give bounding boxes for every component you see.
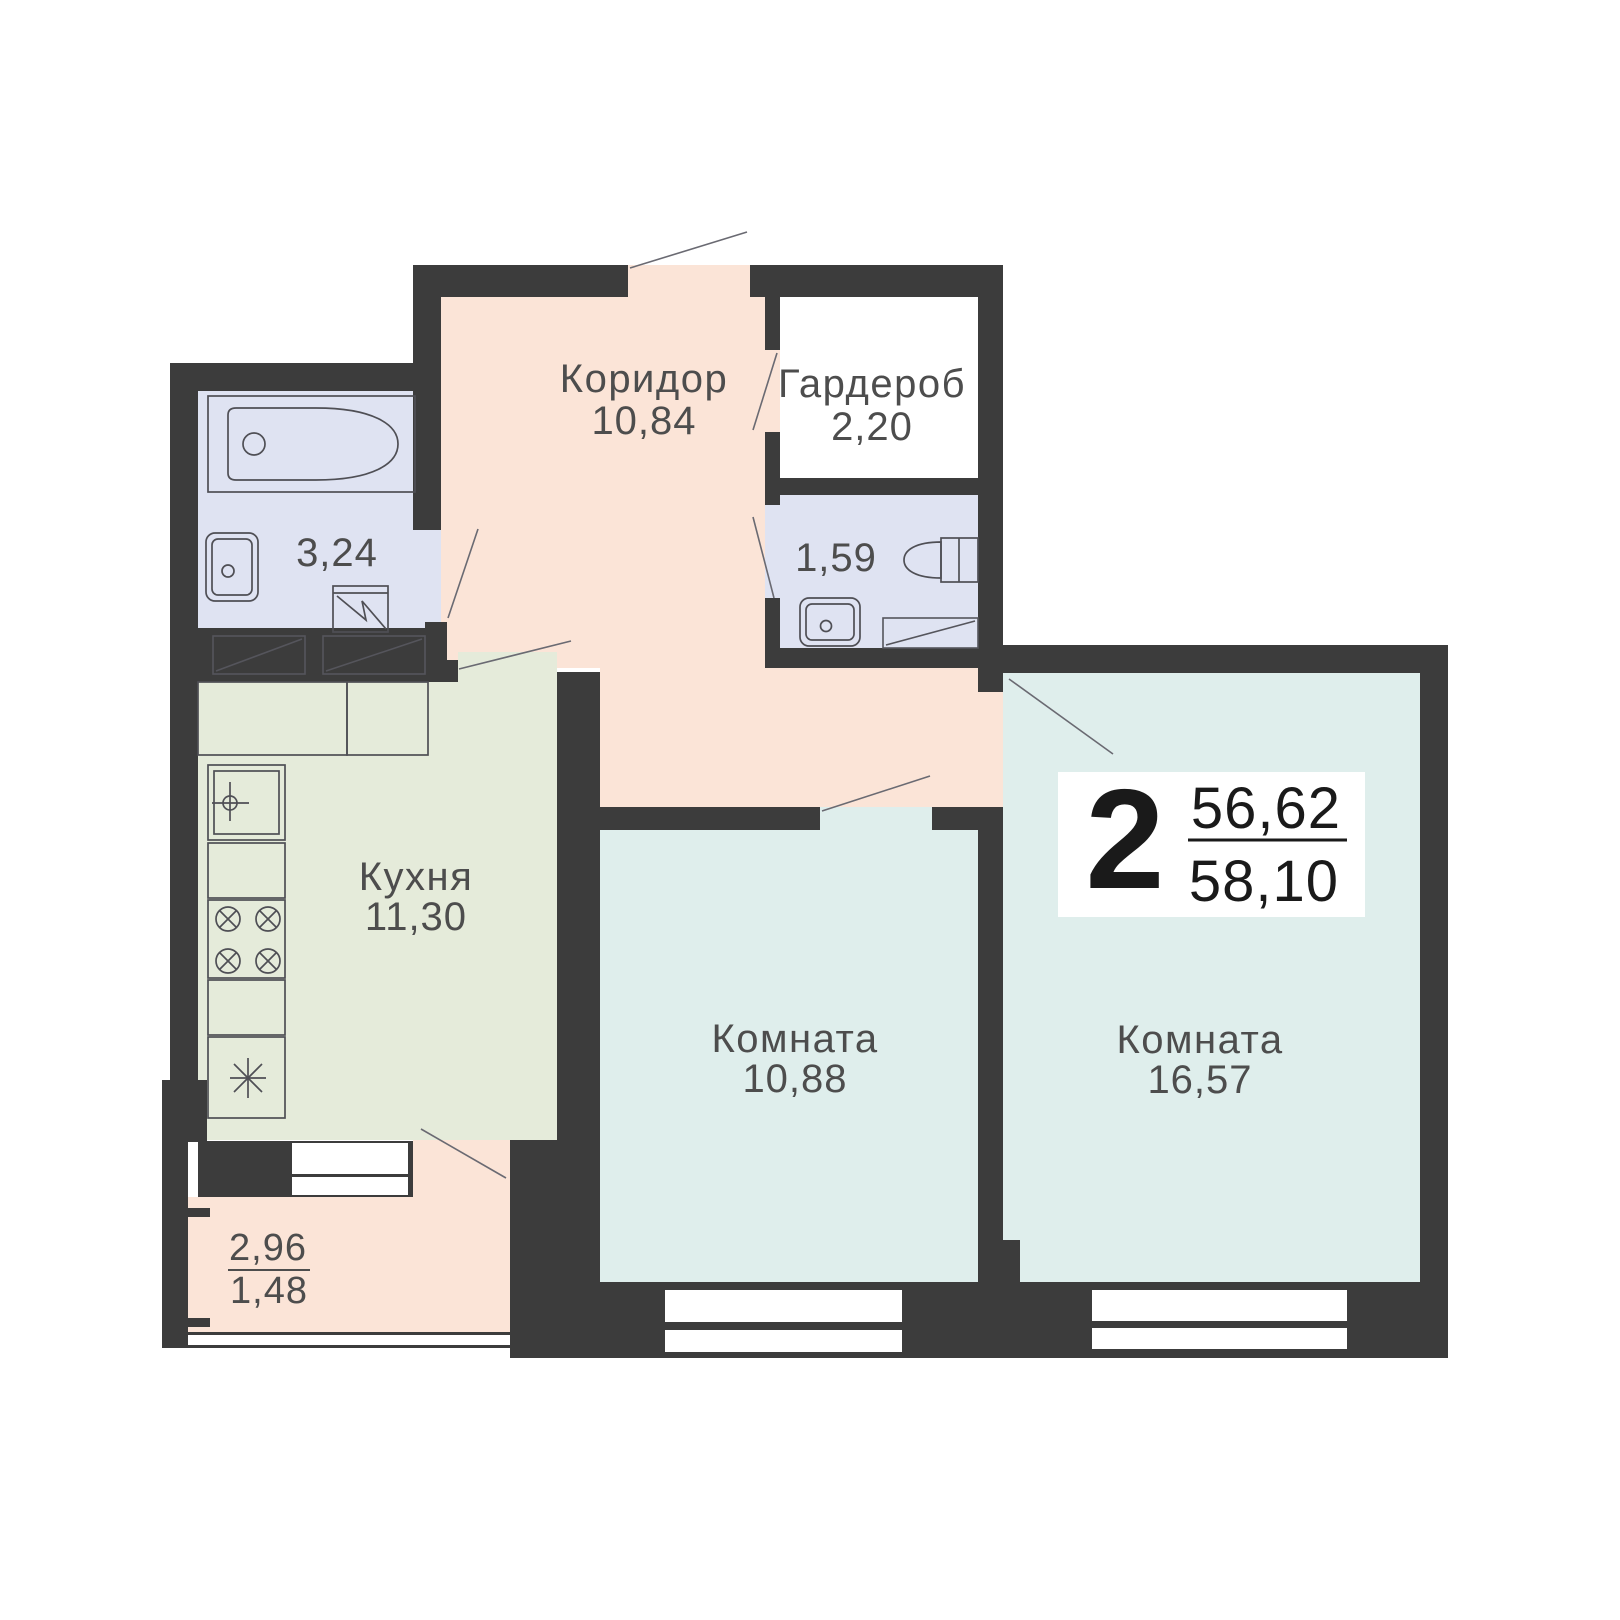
- bathroom-door-gap: [413, 530, 441, 622]
- label-wardrobe-name: Гардероб: [778, 362, 966, 406]
- label-corridor-area: 10,84: [591, 399, 696, 443]
- label-room-large-area: 16,57: [1147, 1058, 1252, 1102]
- kitchen-balcony-window-top: [292, 1143, 408, 1174]
- balcony-glazing: [188, 1335, 510, 1345]
- wc-door-gap: [765, 505, 780, 598]
- label-balcony-area-full: 2,96: [229, 1227, 307, 1269]
- floor-room-large: [1003, 673, 1420, 1282]
- label-kitchen-name: Кухня: [359, 855, 474, 899]
- floor-plan-drawing: Коридор 10,84 Гардероб 2,20 3,24 1,59 Ку…: [0, 0, 1620, 1620]
- entrance-threshold: [628, 265, 750, 297]
- room-small-window-inner: [665, 1330, 902, 1352]
- floor-corridor-upper: [441, 297, 765, 668]
- floor-plan-page: Коридор 10,84 Гардероб 2,20 3,24 1,59 Ку…: [0, 0, 1620, 1620]
- label-kitchen-area: 11,30: [365, 895, 467, 939]
- kitchen-balcony-window-bottom: [292, 1177, 408, 1195]
- badge-living-area: 56,62: [1191, 776, 1341, 841]
- badge-rooms-count: 2: [1086, 760, 1165, 919]
- badge-total-area: 58,10: [1189, 849, 1339, 914]
- label-room-small-name: Комната: [711, 1017, 878, 1061]
- door-swing-entrance: [630, 232, 747, 268]
- label-wc-area: 1,59: [795, 536, 877, 580]
- label-balcony-area-reduced: 1,48: [230, 1270, 308, 1312]
- area-badge: 2 56,62 58,10: [1058, 760, 1365, 919]
- label-room-large-name: Комната: [1116, 1018, 1283, 1062]
- room-large-door-gap: [978, 688, 1003, 810]
- room-large-window-outer: [1092, 1290, 1347, 1321]
- room-large-window-inner: [1092, 1328, 1347, 1349]
- label-bathroom-area: 3,24: [296, 531, 378, 575]
- label-wardrobe-area: 2,20: [831, 405, 913, 449]
- label-room-small-area: 10,88: [742, 1057, 847, 1101]
- room-small-door-gap: [820, 807, 932, 830]
- label-corridor-name: Коридор: [560, 357, 728, 401]
- floor-corridor-lower: [600, 660, 978, 810]
- room-small-window-outer: [665, 1290, 902, 1322]
